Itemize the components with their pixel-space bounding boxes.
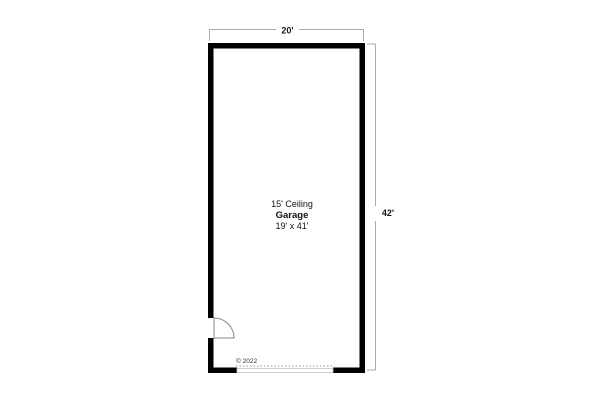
ceiling-height-label: 15' Ceiling: [271, 199, 313, 209]
floor-plan-drawing: 20' 42' 15' Ceili: [0, 0, 600, 400]
garage-door-opening: [236, 366, 333, 373]
floor-plan-canvas: 20' 42' 15' Ceili: [0, 0, 600, 400]
wall-bottom-right: [333, 368, 365, 374]
garage-door-opening-bar: [237, 369, 333, 373]
door-swing-arc: [214, 318, 234, 338]
wall-right: [360, 43, 366, 373]
copyright-label: © 2022: [236, 357, 257, 365]
wall-bottom-left: [208, 368, 237, 374]
dimension-top: 20': [210, 26, 364, 42]
room-size-label: 19' x 41': [276, 221, 309, 231]
wall-top: [208, 43, 365, 49]
dimension-top-label: 20': [281, 26, 293, 36]
dimension-right: 42': [367, 44, 394, 370]
wall-left-upper: [208, 43, 214, 318]
door-swing: [214, 318, 234, 338]
room-labels: 15' Ceiling Garage 19' x 41': [271, 199, 313, 231]
dimension-right-label: 42': [382, 208, 394, 218]
room-name-label: Garage: [276, 210, 309, 221]
